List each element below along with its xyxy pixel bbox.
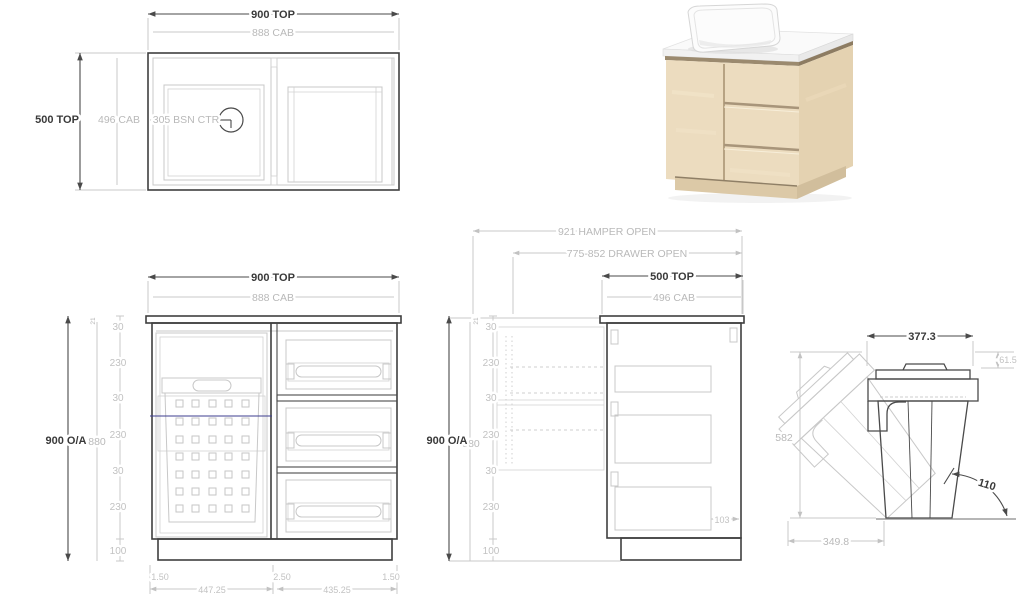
plan-view: 900 TOP 888 CAB 500 TOP 496 CAB 305 BSN … xyxy=(35,9,399,190)
side-chain-4: 30 xyxy=(485,466,497,477)
front-dim-edge-left: 1.50 xyxy=(151,572,169,582)
front-dim-900-oa: 900 O/A xyxy=(46,435,87,447)
tilt-dim-height: 582 xyxy=(775,432,793,444)
front-dim-880: 880 xyxy=(88,436,106,448)
plan-dim-496-cab: 496 CAB xyxy=(98,114,140,126)
basin-center-icon xyxy=(219,108,243,132)
side-dim-900-oa: 900 O/A xyxy=(427,435,468,447)
side-dim-drawer-open: 775-852 DRAWER OPEN xyxy=(567,248,687,260)
side-chain-3: 230 xyxy=(483,430,500,441)
plan-dimensions: 900 TOP 888 CAB 500 TOP 496 CAB 305 BSN … xyxy=(35,9,399,190)
side-chain-2: 30 xyxy=(485,393,497,404)
tilt-dim-base: 349.8 xyxy=(823,536,849,548)
front-dim-447: 447.25 xyxy=(198,585,226,595)
side-dim-496-cab: 496 CAB xyxy=(653,292,695,304)
render-basin xyxy=(688,4,780,54)
front-chain-0: 30 xyxy=(112,322,124,333)
side-chain-6: 100 xyxy=(483,546,500,557)
side-chain-5: 230 xyxy=(483,502,500,513)
side-view: 921 HAMPER OPEN 775-852 DRAWER OPEN 500 … xyxy=(427,226,744,561)
vanity-spec-sheet: 900 TOP 888 CAB 500 TOP 496 CAB 305 BSN … xyxy=(0,0,1024,603)
front-dim-counter: 21 xyxy=(90,317,97,325)
side-dim-500-top: 500 TOP xyxy=(650,271,694,283)
front-dim-edge-right: 1.50 xyxy=(382,572,400,582)
tilt-view: 377.3 61.5 582 349.8 110 xyxy=(769,331,1017,548)
side-kickboard xyxy=(621,538,741,560)
tilt-upright-bucket xyxy=(868,364,978,518)
front-dimensions: 900 TOP 888 CAB 21 30 230 30 230 30 230 … xyxy=(46,272,400,595)
hamper-door xyxy=(156,333,267,537)
front-dim-435: 435.25 xyxy=(323,585,351,595)
hamper-perforations xyxy=(176,400,249,512)
side-dim-counter: 21 xyxy=(473,317,480,325)
hamper-basket xyxy=(150,378,272,522)
front-outline xyxy=(146,316,401,560)
tilt-dim-rim-height: 61.5 xyxy=(999,355,1017,365)
side-open-ghost xyxy=(497,327,604,470)
render-cabinet-body xyxy=(665,41,853,190)
front-dim-888-cab: 888 CAB xyxy=(252,292,294,304)
front-chain-4: 30 xyxy=(112,466,124,477)
tilt-dimensions: 377.3 61.5 582 349.8 110 xyxy=(775,331,1017,548)
front-chain-1: 230 xyxy=(110,358,127,369)
front-chain-2: 30 xyxy=(112,393,124,404)
tilt-dim-angle: 110 xyxy=(977,477,997,494)
plan-dim-basin-center: 305 BSN CTR xyxy=(153,114,220,126)
tilt-ghost-bucket xyxy=(769,343,954,531)
plan-dim-888-cab: 888 CAB xyxy=(252,27,294,39)
plan-dim-500-top: 500 TOP xyxy=(35,114,79,126)
side-interior xyxy=(611,328,737,530)
spec-drawing: 900 TOP 888 CAB 500 TOP 496 CAB 305 BSN … xyxy=(0,0,1024,603)
front-chain-6: 100 xyxy=(110,546,127,557)
front-kickboard xyxy=(158,539,392,560)
front-chain-5: 230 xyxy=(110,502,127,513)
plan-dim-900-top: 900 TOP xyxy=(251,9,295,21)
side-dim-hamper-open: 921 HAMPER OPEN xyxy=(558,226,656,238)
front-view: 900 TOP 888 CAB 21 30 230 30 230 30 230 … xyxy=(46,272,401,595)
front-drawer-stack xyxy=(286,340,391,532)
side-dim-103: 103 xyxy=(714,515,729,525)
side-chain-0: 30 xyxy=(485,322,497,333)
tilt-dim-width: 377.3 xyxy=(908,331,936,343)
product-render xyxy=(663,4,853,203)
front-chain-3: 230 xyxy=(110,430,127,441)
side-chain-1: 230 xyxy=(483,358,500,369)
front-dim-900-top: 900 TOP xyxy=(251,272,295,284)
front-dim-edge-center: 2.50 xyxy=(273,572,291,582)
